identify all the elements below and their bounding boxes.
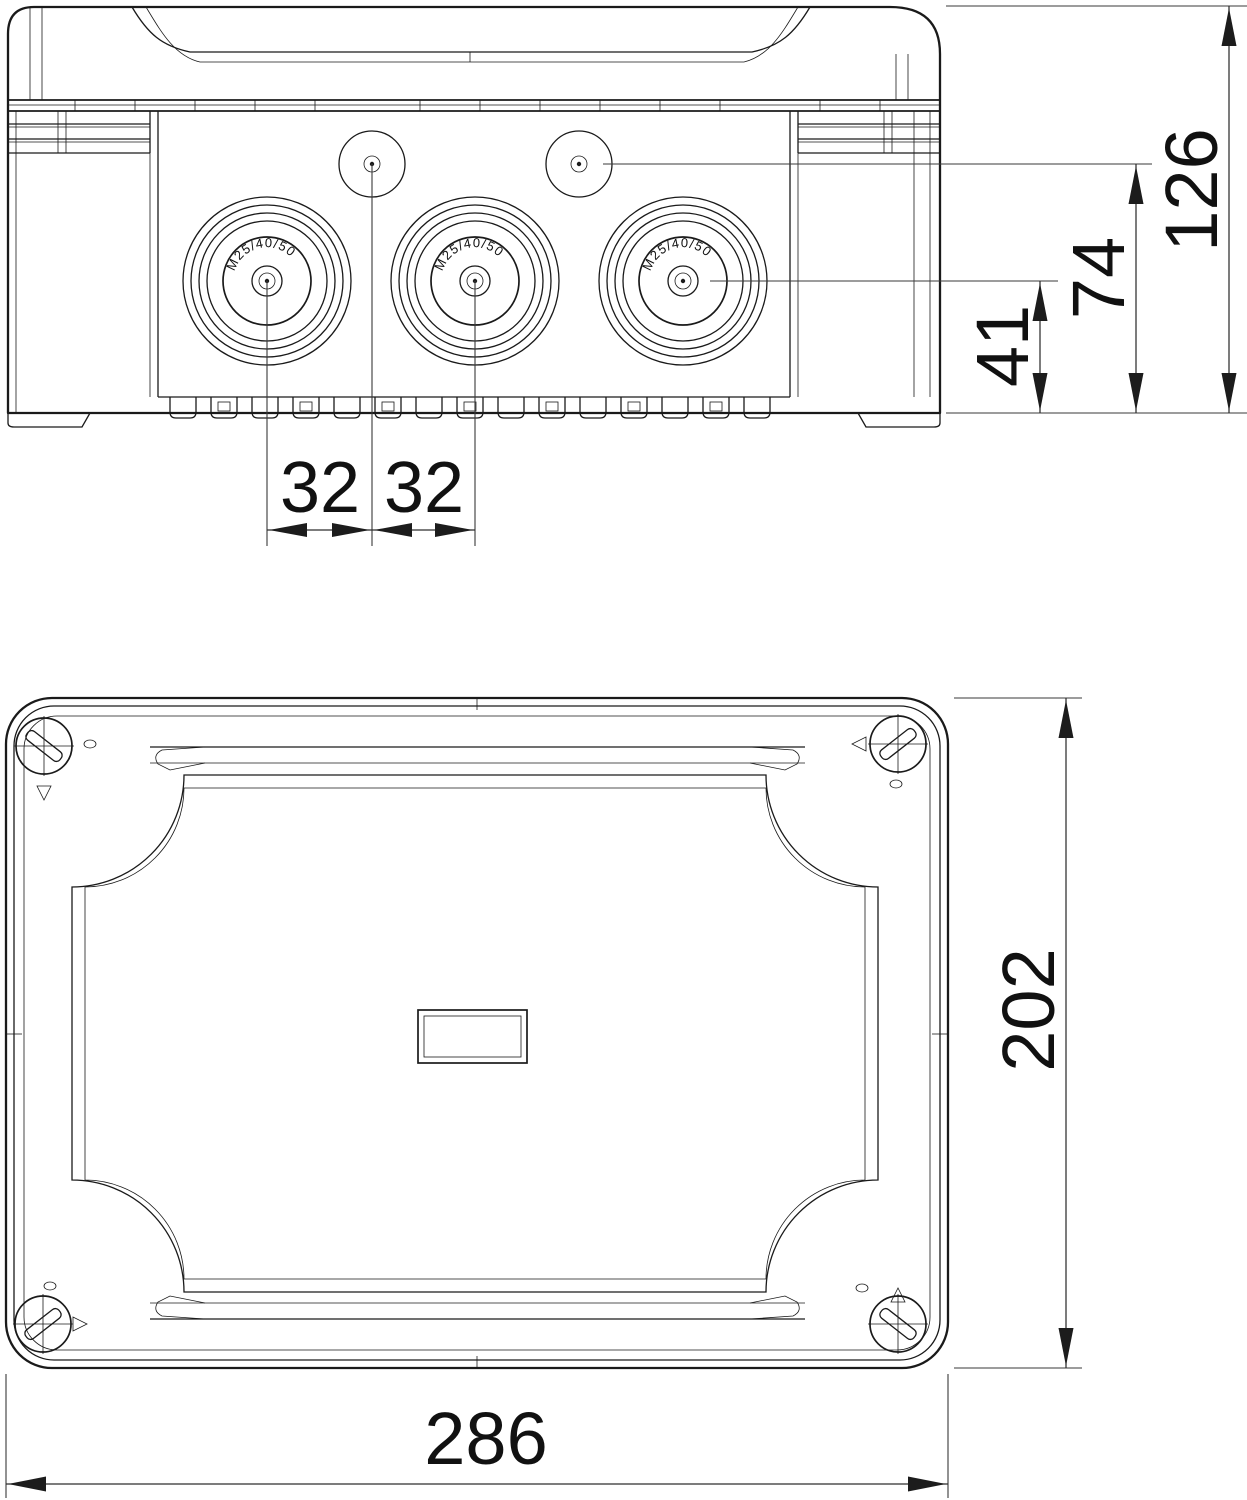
dim-gland-height-value: 41: [961, 305, 1044, 387]
dimension-gland-height: 41: [961, 281, 1048, 413]
left-latch: [8, 111, 150, 153]
dimension-width: 286: [6, 1374, 948, 1498]
dimension-depth: 202: [954, 698, 1082, 1368]
lid-outline: [6, 698, 948, 1368]
knockout-2: [546, 131, 612, 197]
dim-depth-value: 202: [987, 948, 1070, 1071]
top-grip-strip: [150, 747, 805, 770]
dimensional-drawing: M25/40/50 M25/40/50 M25/40/50: [0, 0, 1247, 1500]
technical-drawing-page: M25/40/50 M25/40/50 M25/40/50: [0, 0, 1247, 1500]
lid-panel-inner: [85, 788, 865, 1279]
dimension-knockout-height: 74: [1057, 164, 1144, 413]
left-foot: [8, 413, 90, 427]
dim-pitch-right-value: 32: [384, 448, 464, 528]
dim-width-value: 286: [424, 1397, 547, 1480]
dimension-entry-pitch: 32 32: [267, 448, 475, 537]
label-window: [418, 1010, 527, 1063]
gland-center-dot: [681, 279, 685, 283]
box-outline: [8, 7, 940, 413]
lid-panel-outer: [72, 775, 878, 1292]
dimension-total-height: 126: [1150, 6, 1237, 413]
dim-knockout-height-value: 74: [1057, 237, 1140, 319]
right-latch: [798, 111, 940, 153]
side-view-dimensions: 32 32 41 74 126: [267, 6, 1247, 546]
lid-channel-inner: [146, 7, 798, 62]
bottom-tabs: [170, 397, 770, 418]
lid-channel-outer: [132, 7, 810, 52]
corner-screw-bottom-right: [856, 1284, 928, 1354]
corner-screw-top-left: [14, 716, 96, 800]
plan-view-dimensions: 202 286: [6, 698, 1082, 1498]
rim-band: [8, 100, 940, 111]
dim-pitch-left-value: 32: [280, 448, 360, 528]
bottom-grip-strip: [150, 1296, 805, 1319]
corner-screw-top-right: [852, 714, 928, 788]
plan-view: [6, 698, 948, 1368]
dim-total-height-value: 126: [1150, 128, 1233, 251]
right-foot: [858, 413, 940, 427]
side-view: M25/40/50 M25/40/50 M25/40/50: [8, 7, 940, 427]
